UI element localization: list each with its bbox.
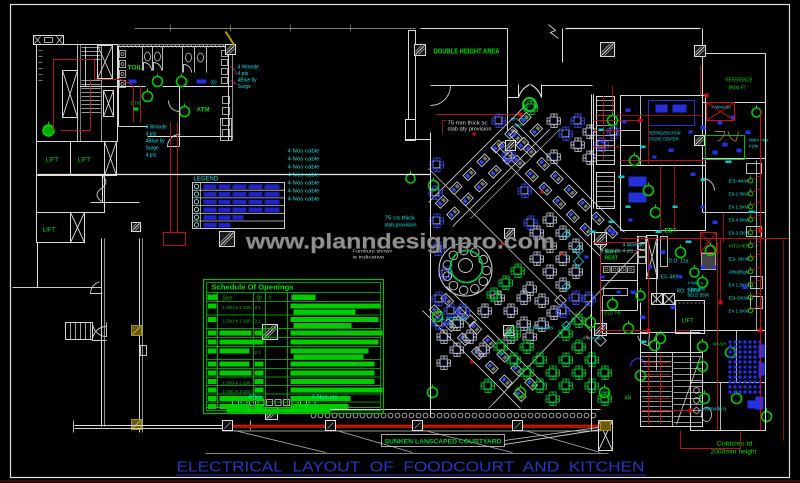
- svg-text:4 pts: 4 pts: [623, 249, 634, 255]
- svg-text:ELECTRICAL LAYOUT OF FOODCO: ELECTRICAL LAYOUT OF FOODCOURT AND KITCH…: [177, 459, 645, 476]
- svg-text:LIFT: LIFT: [78, 157, 91, 164]
- svg-text:4 Nos: 4 Nos: [249, 395, 263, 401]
- svg-text:LIFT: LIFT: [43, 227, 56, 234]
- svg-text:4 Wmode: 4 Wmode: [238, 65, 260, 71]
- svg-text:Surge: Surge: [238, 84, 252, 90]
- svg-text:E9-1 5KW: E9-1 5KW: [729, 192, 750, 198]
- svg-text:4 Nos cable: 4 Nos cable: [288, 189, 320, 195]
- svg-text:Cubicles td: Cubicles td: [717, 442, 753, 448]
- svg-text:SUNKEN LANSCAPED COURTYARD: SUNKEN LANSCAPED COURTYARD: [385, 439, 503, 446]
- svg-text:4 pts: 4 pts: [238, 71, 249, 77]
- svg-text:1 500 X 2 100: 1 500 X 2 100: [223, 381, 251, 386]
- svg-text:EDT: EDT: [665, 229, 677, 235]
- svg-text:WASH: WASH: [713, 342, 727, 347]
- svg-text:4 Nos cable: 4 Nos cable: [288, 165, 320, 171]
- svg-text:4 Nos cable: 4 Nos cable: [288, 173, 320, 179]
- svg-text:ATM: ATM: [197, 108, 210, 114]
- svg-text:1 500 X 2 100: 1 500 X 2 100: [223, 389, 251, 394]
- svg-text:4 Nos cable: 4 Nos cable: [288, 157, 320, 163]
- svg-text:DOUBLE HEIGHT AREA: DOUBLE HEIGHT AREA: [434, 47, 500, 56]
- svg-text:E DB: E DB: [131, 101, 142, 106]
- svg-text:6 Nos da: 6 Nos da: [601, 249, 621, 255]
- svg-text:slab qty provision: slab qty provision: [448, 127, 492, 133]
- svg-text:AlfredDgM: AlfredDgM: [729, 270, 750, 276]
- svg-text:4 Nos cts: 4 Nos cts: [528, 326, 555, 332]
- svg-text:E3-4KW: E3-4KW: [729, 179, 751, 185]
- svg-text:2.1: 2.1: [255, 305, 262, 310]
- svg-text:is indicative: is indicative: [353, 255, 386, 260]
- svg-text:4 Nos cts: 4 Nos cts: [312, 395, 339, 401]
- svg-text:E3- 5KW: E3- 5KW: [729, 257, 751, 263]
- svg-text:4 Nos cable: 4 Nos cable: [288, 181, 320, 187]
- svg-text:E9-3 5KW: E9-3 5KW: [729, 231, 750, 237]
- svg-text:4 Nos cts: 4 Nos cts: [441, 317, 468, 323]
- svg-text:D.O. 11a.: D.O. 11a.: [669, 259, 690, 265]
- svg-text:2000mm height: 2000mm height: [711, 450, 757, 456]
- svg-text:REFERENCE: REFERENCE: [726, 78, 754, 84]
- svg-text:1 500 X 2 100: 1 500 X 2 100: [223, 305, 251, 310]
- svg-text:REST: REST: [605, 256, 618, 262]
- svg-text:E9-4 5KW: E9-4 5KW: [729, 218, 750, 224]
- svg-text:(g): (g): [211, 80, 217, 86]
- svg-text:4 Nos cable: 4 Nos cable: [288, 149, 320, 155]
- svg-text:8500 FT: 8500 FT: [729, 86, 747, 92]
- svg-text:TOIL: TOIL: [128, 66, 143, 72]
- svg-text:2.1: 2.1: [255, 319, 262, 324]
- svg-text:LIFT: LIFT: [46, 157, 59, 164]
- svg-text:Size: Size: [223, 296, 233, 302]
- svg-text:LEGEND: LEGEND: [194, 177, 219, 183]
- svg-text:Schedule Of Openings: Schedule Of Openings: [212, 283, 294, 292]
- svg-text:4 Wmode: 4 Wmode: [583, 336, 603, 341]
- svg-text:REFRIGERATION: REFRIGERATION: [649, 131, 681, 136]
- svg-text:#: #: [269, 296, 272, 302]
- svg-text:4 pts: 4 pts: [146, 132, 157, 138]
- svg-text:1 500 X 2 100: 1 500 X 2 100: [223, 319, 251, 324]
- svg-text:4Blue tly: 4Blue tly: [146, 139, 166, 145]
- svg-text:4 Wire u: 4 Wire u: [688, 281, 704, 286]
- svg-text:Qt: Qt: [257, 296, 263, 302]
- svg-text:E3- 4KW: E3- 4KW: [661, 275, 681, 281]
- svg-text:KITCHEN: KITCHEN: [729, 244, 751, 250]
- svg-text:4 Wmode: 4 Wmode: [146, 125, 168, 131]
- svg-text:STORE CENTER: STORE CENTER: [649, 137, 680, 142]
- svg-text:4Blue tly: 4Blue tly: [238, 78, 258, 84]
- svg-text:ELD PB: ELD PB: [605, 311, 621, 316]
- svg-text:75 ca thick: 75 ca thick: [385, 216, 416, 222]
- svg-text:slab provision: slab provision: [385, 223, 417, 229]
- svg-text:4 Nos cable: 4 Nos cable: [288, 197, 320, 203]
- svg-text:RO. 14KW: RO. 14KW: [677, 289, 701, 295]
- svg-text:4 pts: 4 pts: [749, 144, 760, 149]
- svg-text:Surge: Surge: [146, 146, 160, 152]
- svg-text:4 Wmode a: 4 Wmode a: [701, 407, 727, 413]
- svg-text:E9-5KW: E9-5KW: [729, 296, 751, 302]
- svg-text:E4 1.5KW: E4 1.5KW: [729, 309, 750, 315]
- svg-text:LIFT: LIFT: [682, 319, 695, 325]
- svg-text:2.1: 2.1: [255, 350, 262, 355]
- svg-text:E4 1.5KW: E4 1.5KW: [729, 205, 750, 211]
- svg-text:www.planndesignpro.com: www.planndesignpro.com: [245, 230, 555, 254]
- svg-text:AB: AB: [625, 396, 632, 402]
- svg-text:4 pts: 4 pts: [146, 153, 157, 159]
